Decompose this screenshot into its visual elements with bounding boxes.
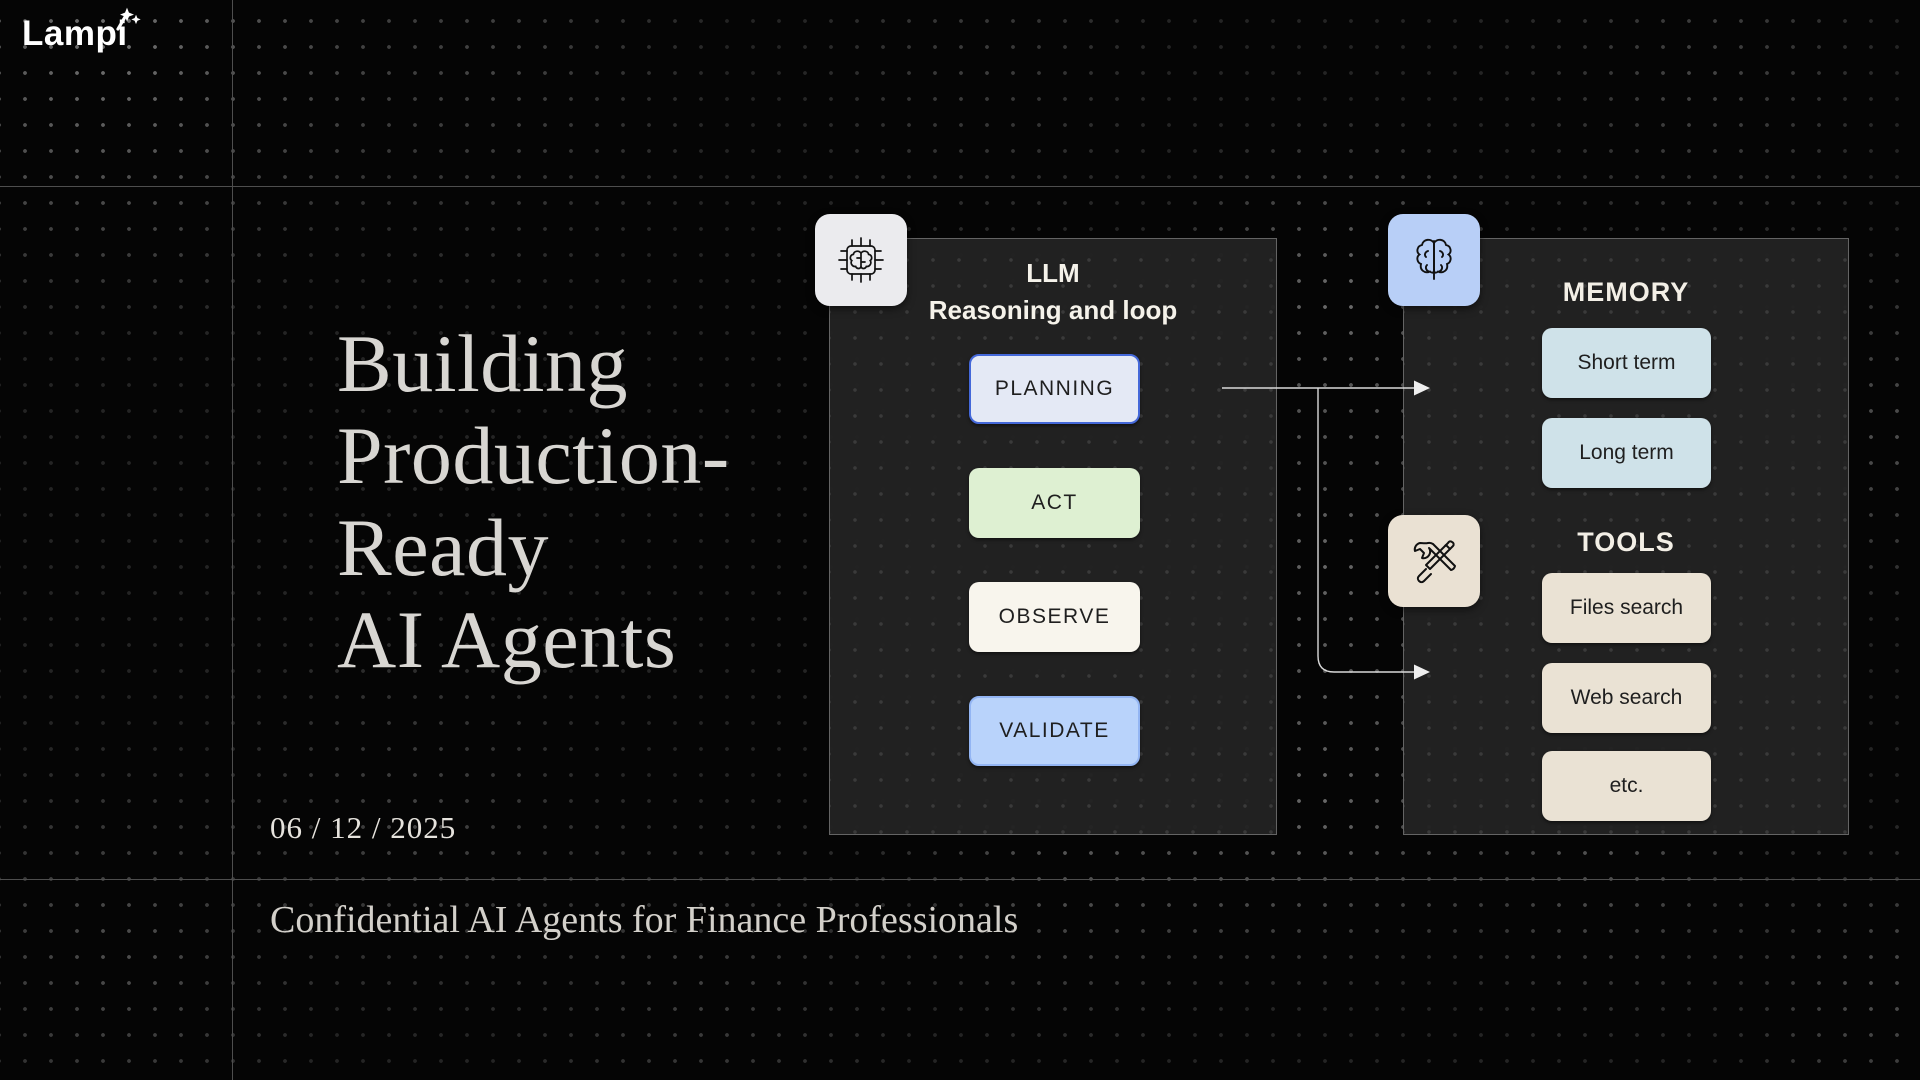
top-grid-line — [0, 186, 1920, 187]
step-observe: OBSERVE — [969, 582, 1140, 652]
memory-long-term: Long term — [1542, 418, 1711, 488]
magic-wand-sparkle-icon — [108, 6, 142, 46]
step-validate: VALIDATE — [969, 696, 1140, 766]
title-line-4: AI Agents — [337, 594, 730, 686]
tool-files-search: Files search — [1542, 573, 1711, 643]
step-planning: PLANNING — [969, 354, 1140, 424]
title-line-3: Ready — [337, 502, 730, 594]
memory-short-term: Short term — [1542, 328, 1711, 398]
slide-date: 06 / 12 / 2025 — [270, 810, 456, 846]
memory-short-term-label: Short term — [1577, 351, 1675, 375]
title-line-2: Production- — [337, 410, 730, 502]
crossed-tools-icon — [1388, 515, 1480, 607]
brain-icon — [1388, 214, 1480, 306]
step-observe-label: OBSERVE — [999, 605, 1111, 629]
step-planning-label: PLANNING — [995, 377, 1114, 401]
tool-web-search-label: Web search — [1571, 686, 1683, 710]
tool-web-search: Web search — [1542, 663, 1711, 733]
step-act: ACT — [969, 468, 1140, 538]
slide-footer: Confidential AI Agents for Finance Profe… — [270, 898, 1018, 942]
bottom-grid-line — [0, 879, 1920, 880]
lampi-logo: Lampi — [22, 14, 128, 54]
slide-title: Building Production- Ready AI Agents — [337, 318, 730, 686]
tool-files-search-label: Files search — [1570, 596, 1683, 620]
title-line-1: Building — [337, 318, 730, 410]
step-validate-label: VALIDATE — [999, 719, 1109, 743]
brain-chip-icon — [815, 214, 907, 306]
tool-etc-label: etc. — [1610, 774, 1644, 798]
step-act-label: ACT — [1031, 491, 1078, 515]
tool-etc: etc. — [1542, 751, 1711, 821]
vertical-grid-line — [232, 0, 233, 1080]
llm-panel: LLM Reasoning and loop PLANNING ACT OBSE… — [829, 238, 1277, 835]
slide: Lampi Building Production- Ready AI Agen… — [0, 0, 1920, 1080]
memory-long-term-label: Long term — [1579, 441, 1674, 465]
